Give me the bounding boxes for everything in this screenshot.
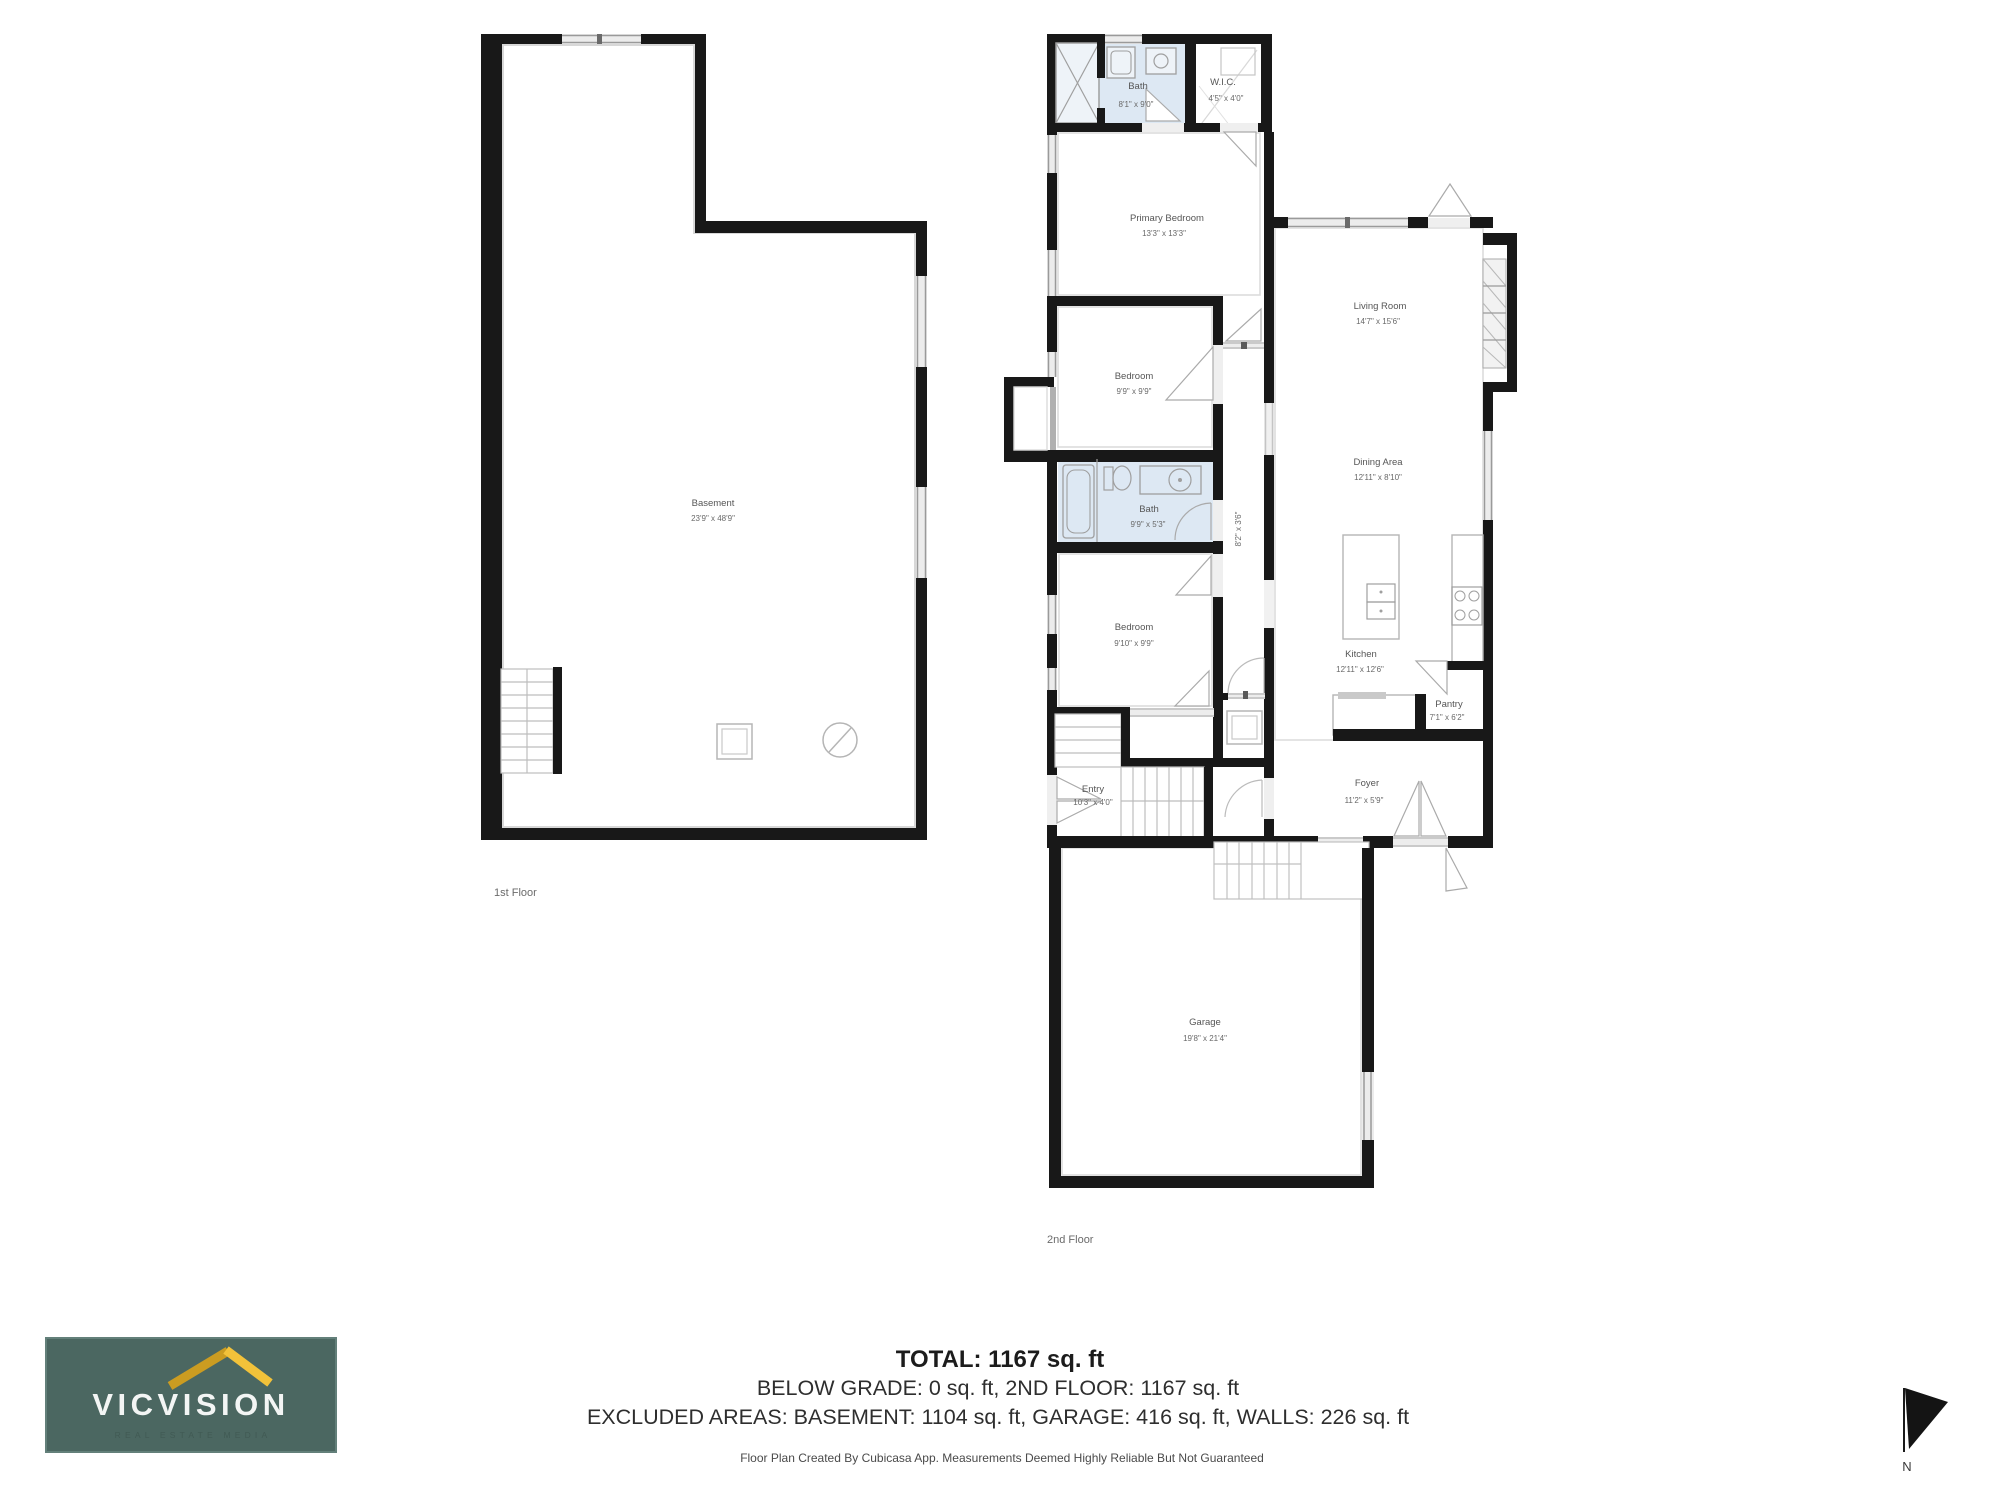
- svg-text:Bath: Bath: [1139, 504, 1159, 515]
- svg-text:8'2" x 3'6": 8'2" x 3'6": [1234, 511, 1243, 546]
- svg-text:Pantry: Pantry: [1435, 699, 1463, 710]
- svg-text:Dining Area: Dining Area: [1353, 457, 1403, 468]
- svg-text:BELOW GRADE: 0 sq. ft, 2ND FLO: BELOW GRADE: 0 sq. ft, 2ND FLOOR: 1167 s…: [757, 1376, 1239, 1400]
- svg-text:TOTAL: 1167 sq. ft: TOTAL: 1167 sq. ft: [896, 1346, 1105, 1373]
- svg-text:9'9" x 5'3": 9'9" x 5'3": [1131, 520, 1166, 529]
- svg-text:Foyer: Foyer: [1355, 778, 1379, 789]
- svg-text:1st Floor: 1st Floor: [494, 887, 537, 899]
- svg-text:8'1" x 9'0": 8'1" x 9'0": [1119, 100, 1154, 109]
- svg-text:Bedroom: Bedroom: [1115, 371, 1154, 382]
- svg-text:7'1" x 6'2": 7'1" x 6'2": [1430, 713, 1465, 722]
- svg-text:11'2" x 5'9": 11'2" x 5'9": [1345, 796, 1384, 805]
- svg-text:9'9" x 9'9": 9'9" x 9'9": [1117, 387, 1152, 396]
- svg-text:Kitchen: Kitchen: [1345, 649, 1377, 660]
- svg-text:Garage: Garage: [1189, 1017, 1221, 1028]
- svg-text:Floor Plan Created By Cubicasa: Floor Plan Created By Cubicasa App. Meas…: [740, 1451, 1264, 1465]
- svg-text:VICVISION: VICVISION: [92, 1387, 289, 1422]
- svg-text:23'9" x 48'9": 23'9" x 48'9": [691, 514, 735, 523]
- svg-text:REAL ESTATE MEDIA: REAL ESTATE MEDIA: [115, 1430, 272, 1440]
- svg-text:13'3" x 13'3": 13'3" x 13'3": [1142, 229, 1186, 238]
- svg-text:Bath: Bath: [1128, 81, 1148, 92]
- svg-text:Primary Bedroom: Primary Bedroom: [1130, 213, 1204, 224]
- svg-text:EXCLUDED AREAS: BASEMENT: 1104: EXCLUDED AREAS: BASEMENT: 1104 sq. ft, G…: [587, 1405, 1409, 1429]
- svg-text:10'3" x 4'0": 10'3" x 4'0": [1073, 798, 1113, 807]
- svg-text:4'5" x 4'0": 4'5" x 4'0": [1209, 94, 1244, 103]
- svg-text:Bedroom: Bedroom: [1115, 622, 1154, 633]
- svg-text:12'11" x 12'6": 12'11" x 12'6": [1336, 665, 1384, 674]
- svg-text:12'11" x 8'10": 12'11" x 8'10": [1354, 473, 1402, 482]
- svg-text:N: N: [1902, 1459, 1911, 1474]
- svg-text:Living Room: Living Room: [1354, 301, 1407, 312]
- svg-text:9'10" x 9'9": 9'10" x 9'9": [1114, 639, 1154, 648]
- svg-text:2nd Floor: 2nd Floor: [1047, 1234, 1094, 1246]
- svg-text:14'7" x 15'6": 14'7" x 15'6": [1356, 317, 1400, 326]
- svg-text:19'8" x 21'4": 19'8" x 21'4": [1183, 1034, 1227, 1043]
- svg-text:Entry: Entry: [1082, 784, 1104, 795]
- svg-text:W.I.C.: W.I.C.: [1210, 77, 1236, 88]
- svg-text:Basement: Basement: [692, 498, 735, 509]
